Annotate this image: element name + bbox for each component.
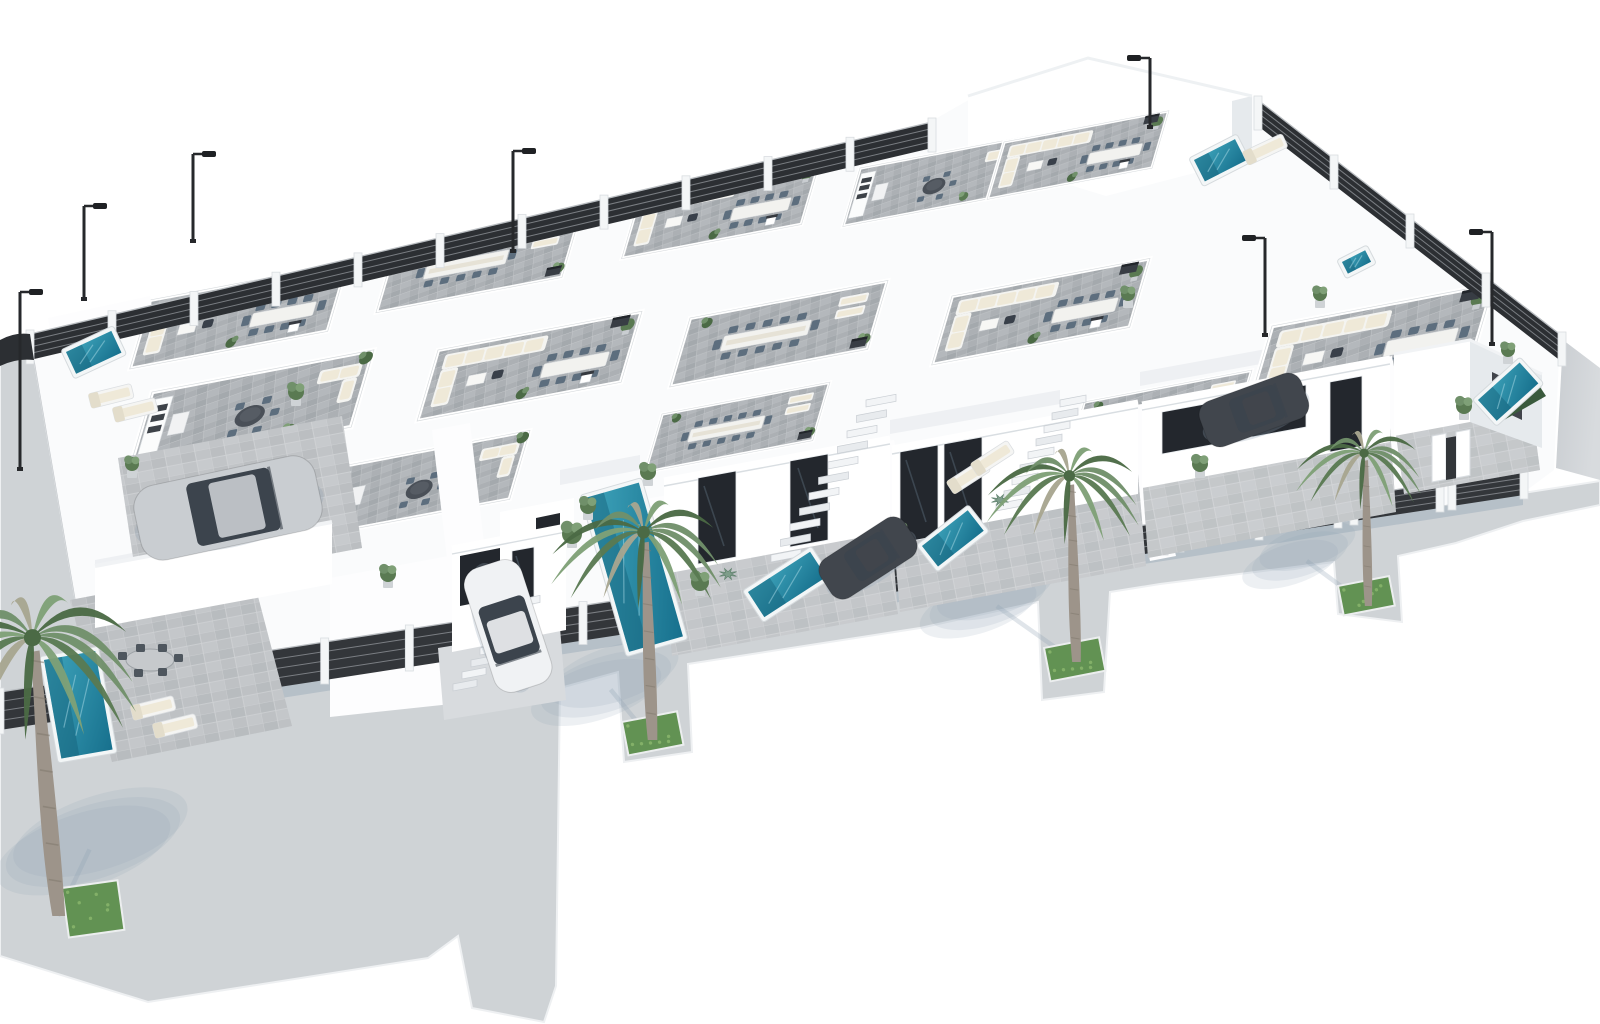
fence-pillar: [436, 234, 444, 268]
fence-pillar: [272, 272, 280, 306]
plant-pot: [127, 470, 137, 478]
fence-pillar: [1558, 332, 1566, 366]
gate-pillar: [1432, 433, 1446, 482]
architectural-render: [0, 0, 1600, 1024]
fence-pillar: [682, 176, 690, 210]
glass-door: [698, 471, 736, 564]
plant-pot: [1123, 300, 1133, 308]
fence-pillar: [190, 291, 198, 325]
lamp-head: [522, 148, 536, 154]
lamp-head: [202, 151, 216, 157]
plant-pot: [1315, 300, 1325, 308]
render-stage: [0, 0, 1600, 1024]
fence-pillar: [846, 137, 854, 171]
fence-pillar: [928, 118, 936, 152]
lamp-head: [29, 289, 43, 295]
grass-patch-1: [62, 880, 124, 937]
fence-pillar: [518, 214, 526, 248]
fence-pillar: [579, 602, 587, 645]
fence-pillar: [600, 195, 608, 229]
fence-pillar: [321, 638, 329, 684]
gate-leaf: [1446, 436, 1456, 480]
fence-pillar: [1254, 96, 1262, 130]
lamp-head: [93, 203, 107, 209]
fence-pillar: [0, 688, 4, 734]
lamp-head: [1242, 235, 1256, 241]
palm-crown: [24, 629, 41, 646]
fence-pillar: [1406, 214, 1414, 248]
fence-pillar: [1330, 155, 1338, 189]
palm-crown: [1064, 470, 1075, 481]
fence-pillar: [405, 625, 413, 671]
fence-pillar: [1482, 273, 1490, 307]
plant-pot: [1503, 356, 1513, 364]
gate-pillar: [1456, 429, 1470, 478]
fence-pillar: [764, 157, 772, 191]
lamp-head: [1469, 229, 1483, 235]
fence-pillar: [354, 253, 362, 287]
lamp-head: [1127, 55, 1141, 61]
palm-crown: [1359, 448, 1368, 457]
palm-crown: [637, 526, 650, 539]
